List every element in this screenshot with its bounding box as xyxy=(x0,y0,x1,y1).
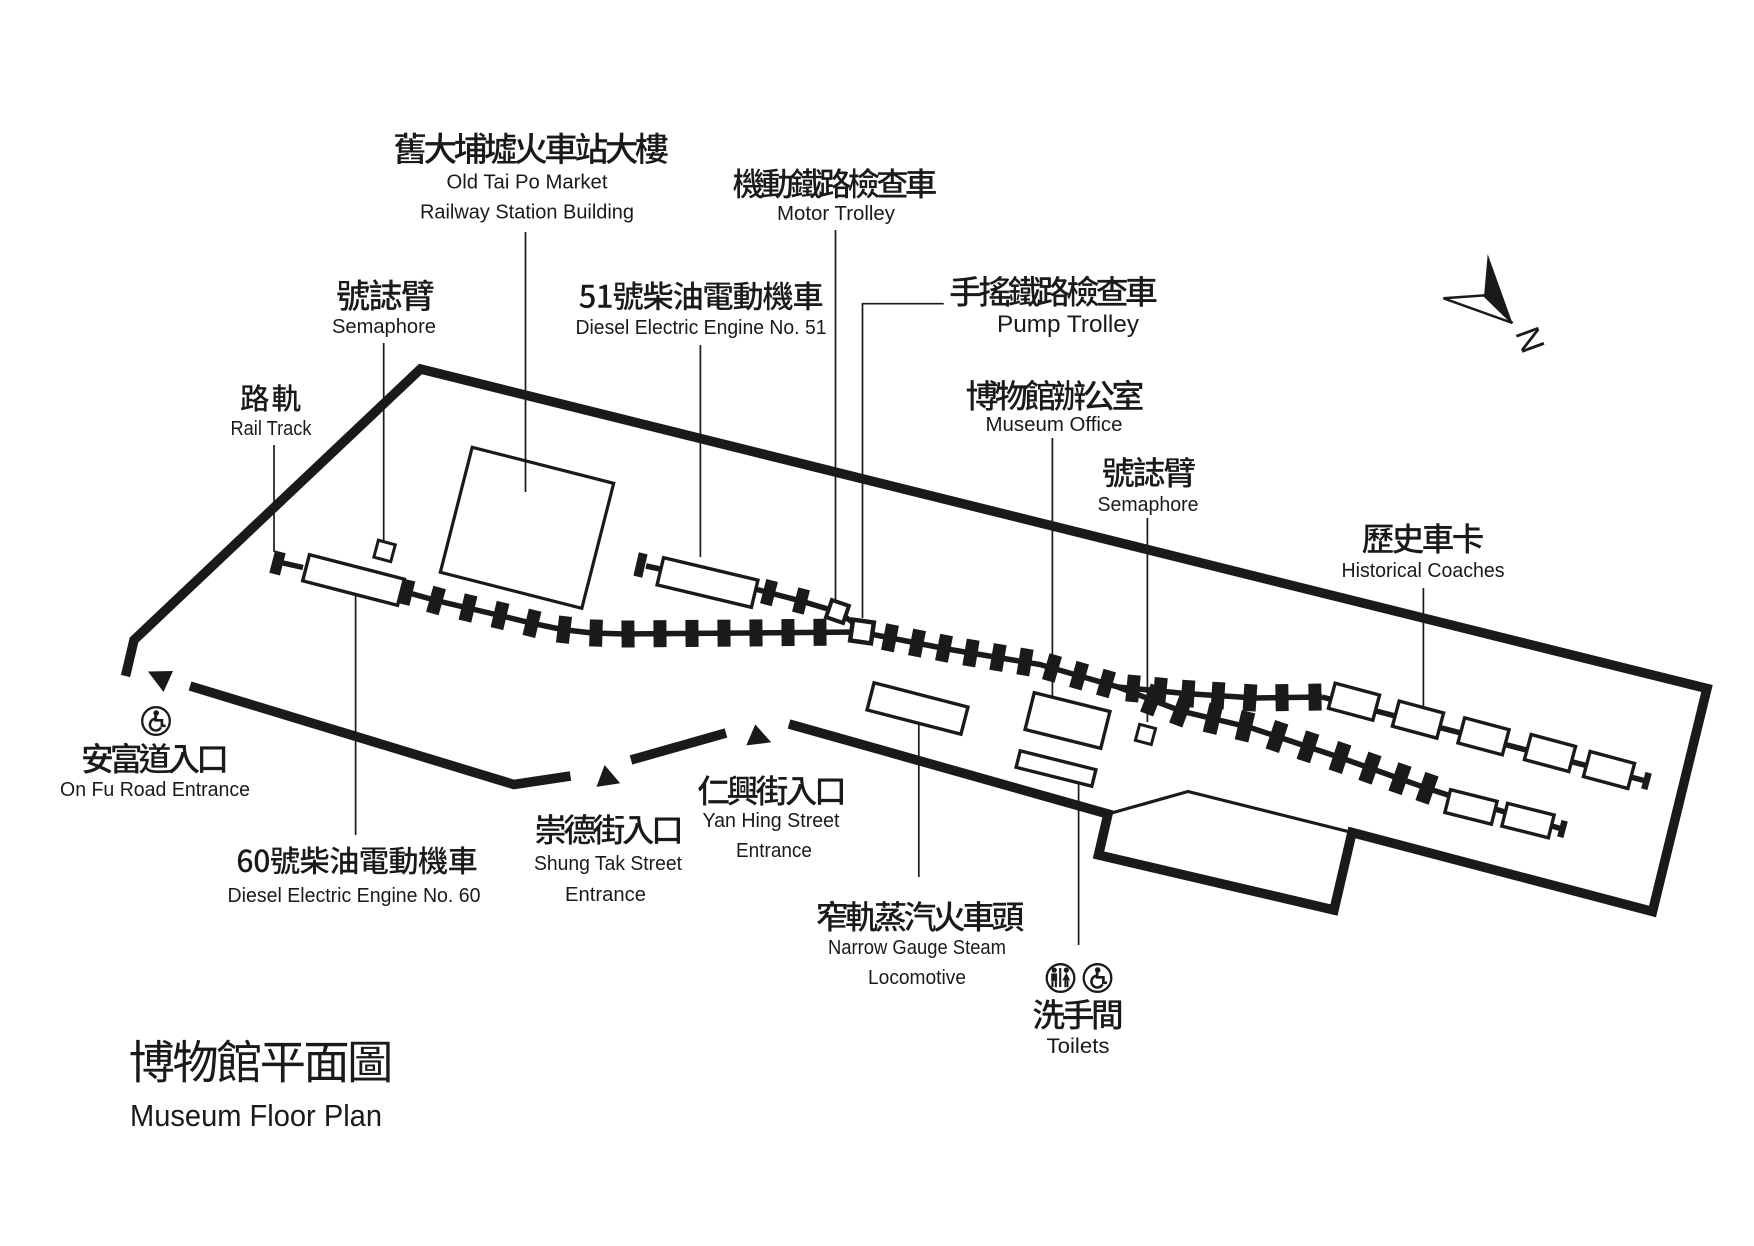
svg-text:Museum Office: Museum Office xyxy=(986,414,1123,436)
svg-text:Diesel Electric Engine No. 60: Diesel Electric Engine No. 60 xyxy=(228,885,481,907)
svg-text:Semaphore: Semaphore xyxy=(332,316,436,338)
svg-text:Museum Floor Plan: Museum Floor Plan xyxy=(130,1098,382,1133)
svg-text:Yan Hing Street: Yan Hing Street xyxy=(703,810,840,832)
svg-text:Narrow Gauge Steam: Narrow Gauge Steam xyxy=(828,937,1006,959)
svg-text:Pump Trolley: Pump Trolley xyxy=(997,311,1139,338)
svg-text:Diesel Electric Engine No. 51: Diesel Electric Engine No. 51 xyxy=(576,317,827,339)
svg-text:Railway Station Building: Railway Station Building xyxy=(420,202,634,224)
svg-text:Entrance: Entrance xyxy=(565,884,646,906)
svg-text:Old Tai Po Market: Old Tai Po Market xyxy=(447,172,608,194)
svg-text:Entrance: Entrance xyxy=(736,840,812,862)
svg-text:Historical Coaches: Historical Coaches xyxy=(1342,560,1505,582)
svg-text:Rail Track: Rail Track xyxy=(231,418,313,440)
svg-text:Toilets: Toilets xyxy=(1047,1034,1110,1058)
svg-text:On Fu Road Entrance: On Fu Road Entrance xyxy=(60,779,250,801)
svg-text:Motor Trolley: Motor Trolley xyxy=(777,203,896,225)
svg-text:Semaphore: Semaphore xyxy=(1098,494,1199,516)
svg-text:Locomotive: Locomotive xyxy=(868,967,966,989)
svg-text:Shung Tak Street: Shung Tak Street xyxy=(534,853,682,875)
